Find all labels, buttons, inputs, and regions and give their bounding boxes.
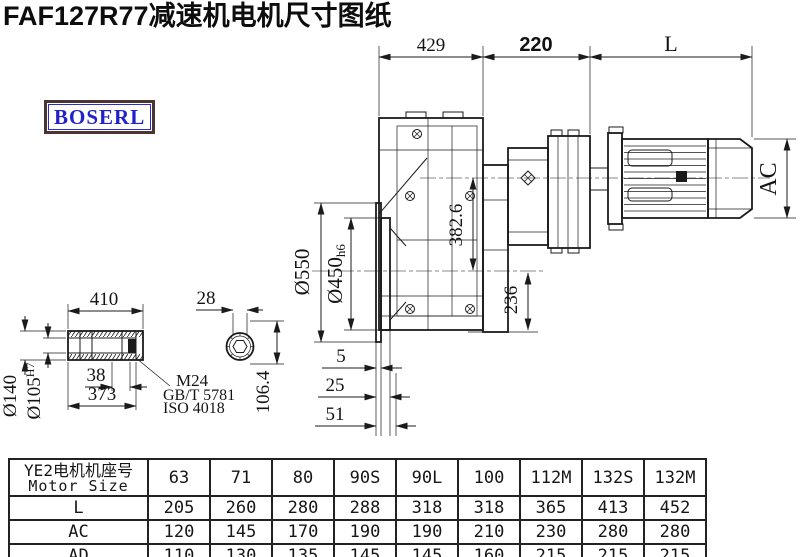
table-cell: 132S bbox=[582, 459, 644, 496]
table-cell: 452 bbox=[644, 496, 706, 520]
table-cell: 365 bbox=[520, 496, 582, 520]
dim-motor-length: L bbox=[664, 31, 677, 56]
table-row-L: L 205 260 280 288 318 318 365 413 452 bbox=[9, 496, 706, 520]
dim-spigot-diameter: Ø450h6 bbox=[323, 244, 348, 304]
header-cn: YE2电机机座号 bbox=[11, 462, 146, 479]
row-label: AC bbox=[9, 520, 148, 544]
table-cell: 110 bbox=[148, 544, 210, 557]
dim-flange-od: Ø550 bbox=[290, 249, 314, 296]
motor-size-table: YE2电机机座号 Motor Size 63 71 80 90S 90L 100… bbox=[8, 458, 707, 557]
top-dimension-chain: 429 220 L bbox=[379, 31, 752, 137]
table-cell: 63 bbox=[148, 459, 210, 496]
table-cell: 205 bbox=[148, 496, 210, 520]
table-cell: 145 bbox=[396, 544, 458, 557]
table-cell: 100 bbox=[458, 459, 520, 496]
table-cell: 112M bbox=[520, 459, 582, 496]
dim-bore-length: 373 bbox=[88, 384, 117, 405]
header-en: Motor Size bbox=[11, 479, 146, 494]
table-header-motor-size: YE2电机机座号 Motor Size bbox=[9, 459, 148, 496]
dim-offset-b: 25 bbox=[326, 375, 345, 396]
gearbox-housing bbox=[379, 112, 483, 330]
table-row-AD: AD 110 130 135 145 145 160 215 215 215 bbox=[9, 544, 706, 557]
standard-iso: ISO 4018 bbox=[163, 400, 225, 417]
dim-hub-od: Ø140 bbox=[0, 375, 21, 417]
fan-cover bbox=[708, 139, 752, 218]
table-cell: 230 bbox=[520, 520, 582, 544]
dim-offset-c: 51 bbox=[326, 404, 345, 425]
knurl-ticks bbox=[227, 333, 254, 360]
center-height-dims: 382.6 236 bbox=[446, 178, 538, 332]
table-cell: 145 bbox=[334, 544, 396, 557]
dim-collar-length: 38 bbox=[87, 365, 106, 386]
table-cell: 160 bbox=[458, 544, 520, 557]
table-cell: 215 bbox=[582, 544, 644, 557]
flange-diameter-dims: Ø550 Ø450h6 bbox=[290, 203, 382, 342]
row-label: AD bbox=[9, 544, 148, 557]
motor-diameter-dim: AC bbox=[754, 139, 796, 218]
table-cell: 170 bbox=[272, 520, 334, 544]
table-cell: 90L bbox=[396, 459, 458, 496]
table-row-AC: AC 120 145 170 190 190 210 230 280 280 bbox=[9, 520, 706, 544]
output-flange bbox=[376, 203, 406, 436]
table-cell: 280 bbox=[582, 520, 644, 544]
row-label: L bbox=[9, 496, 148, 520]
dim-adapter-width: 220 bbox=[519, 34, 552, 56]
table-cell: 318 bbox=[396, 496, 458, 520]
table-cell: 145 bbox=[210, 520, 272, 544]
table-cell: 280 bbox=[644, 520, 706, 544]
dim-base-height: 236 bbox=[501, 286, 522, 315]
table-cell: 90S bbox=[334, 459, 396, 496]
table-cell: 215 bbox=[644, 544, 706, 557]
drawing-page: FAF127R77减速机电机尺寸图纸 BOSERL 429 220 L bbox=[0, 0, 800, 557]
table-cell: 135 bbox=[272, 544, 334, 557]
table-cell: 413 bbox=[582, 496, 644, 520]
dim-gearcase-width: 429 bbox=[417, 35, 446, 56]
dim-bore-diameter: Ø105H7 bbox=[23, 363, 45, 420]
table-cell: 280 bbox=[272, 496, 334, 520]
dim-motor-od: AC bbox=[756, 162, 782, 195]
dim-offset-a: 5 bbox=[336, 346, 346, 367]
table-cell: 130 bbox=[210, 544, 272, 557]
dim-input-center: 382.6 bbox=[446, 204, 467, 247]
table-cell: 210 bbox=[458, 520, 520, 544]
table-cell: 71 bbox=[210, 459, 272, 496]
offset-dims: 5 25 51 bbox=[315, 346, 416, 426]
table-cell: 120 bbox=[148, 520, 210, 544]
dim-section-height: 106.4 bbox=[253, 370, 274, 413]
table-cell: 288 bbox=[334, 496, 396, 520]
table-cell: 80 bbox=[272, 459, 334, 496]
table-cell: 215 bbox=[520, 544, 582, 557]
motor-body bbox=[622, 139, 752, 218]
table-cell: 132M bbox=[644, 459, 706, 496]
table-cell: 318 bbox=[458, 496, 520, 520]
table-cell: 260 bbox=[210, 496, 272, 520]
table-cell: 190 bbox=[334, 520, 396, 544]
dim-shaft-length: 410 bbox=[90, 289, 119, 310]
table-cell: 190 bbox=[396, 520, 458, 544]
table-header-row: YE2电机机座号 Motor Size 63 71 80 90S 90L 100… bbox=[9, 459, 706, 496]
dim-flat-width: 28 bbox=[197, 288, 216, 309]
